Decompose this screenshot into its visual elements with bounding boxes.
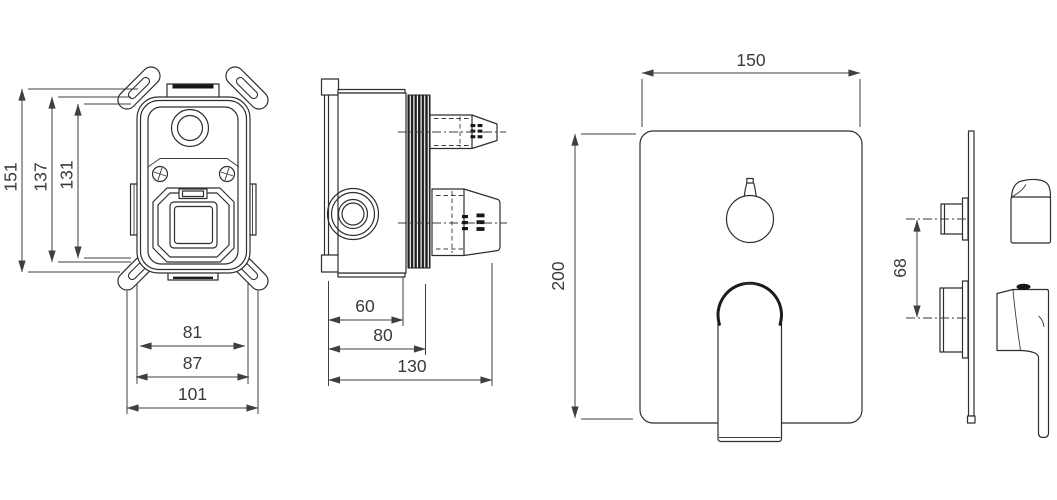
mixer-handle-front: [718, 283, 782, 441]
trim-plate-edge: [969, 131, 975, 416]
dim-plate-width: 150: [642, 50, 860, 127]
dim-label-151: 151: [1, 162, 21, 191]
dim-width-mount: 87: [136, 353, 249, 377]
dim-label-68: 68: [890, 258, 910, 277]
diverter-knob-lip: [1012, 179, 1051, 197]
dimensions-box-side: 60 80 130: [329, 263, 493, 386]
mixer-handle-side: [997, 284, 1049, 438]
handle-lever: [997, 290, 1049, 438]
dim-depth-overall: 130: [329, 356, 493, 380]
box-body-side: [338, 93, 406, 273]
dim-height-inner: 131: [57, 104, 132, 258]
view-trim-plate-side: [906, 131, 1051, 438]
flange-tab-bottom: [322, 255, 339, 272]
flange-tab-top: [322, 79, 339, 95]
box-outer-shell: [137, 97, 250, 273]
dim-handle-spacing: 68: [890, 220, 917, 317]
dimensions-trim-side: 68: [890, 220, 917, 317]
dim-width-overall: 101: [127, 384, 258, 408]
dim-depth-front: 60: [329, 296, 404, 320]
dim-height-mount: 137: [31, 97, 132, 262]
shower-mixer-technical-drawing: 151 137 131 81 87 101: [0, 0, 1057, 500]
view-trim-plate-front: [640, 131, 862, 442]
diverter-knob-circle: [727, 196, 774, 243]
dim-width-inner: 81: [140, 322, 245, 346]
diverter-knob-block: [1011, 197, 1051, 243]
view-mounting-box-side: [322, 79, 508, 277]
dim-label-80: 80: [373, 325, 393, 345]
threaded-sleeve: [408, 95, 430, 268]
handle-outline: [718, 283, 782, 441]
view-mounting-box-front: [114, 63, 271, 293]
dim-plate-height: 200: [548, 134, 636, 419]
dim-depth-mid: 80: [329, 325, 426, 349]
handle-flange: [963, 281, 969, 358]
dim-label-60: 60: [355, 296, 375, 316]
handle-top-dot: [1017, 284, 1031, 290]
dim-label-81: 81: [183, 322, 202, 342]
dim-label-200: 200: [548, 261, 568, 290]
dim-label-101: 101: [178, 384, 207, 404]
trim-plate-bottom-cap: [968, 416, 976, 423]
top-tab-bar: [173, 85, 214, 89]
diverter-knob-side: [1011, 179, 1051, 243]
technical-drawing-page: 151 137 131 81 87 101: [0, 0, 1057, 500]
dim-label-150: 150: [736, 50, 765, 70]
dim-label-87: 87: [183, 353, 202, 373]
dim-label-131: 131: [57, 160, 77, 189]
dim-label-137: 137: [31, 162, 51, 191]
dim-label-130: 130: [397, 356, 426, 376]
wall-flange: [322, 79, 339, 272]
